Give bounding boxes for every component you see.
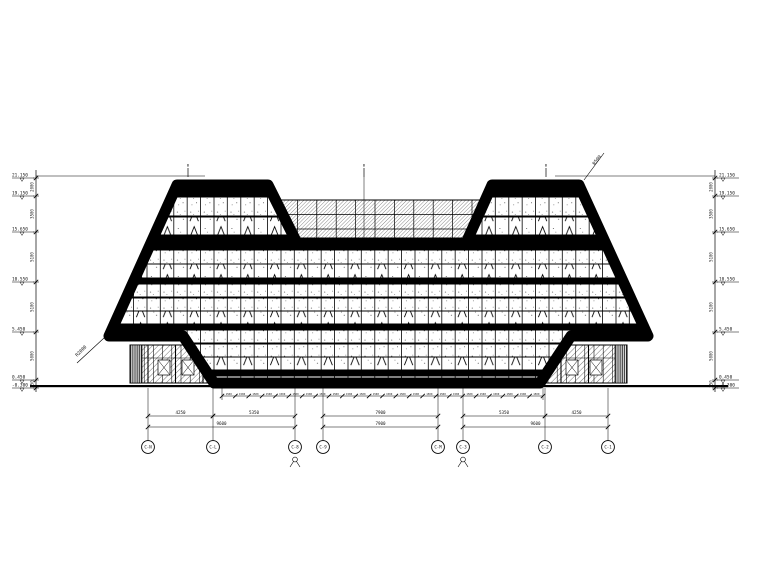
svg-text:1500: 1500	[373, 392, 380, 396]
level-symbol	[721, 388, 725, 391]
svg-text:1500: 1500	[279, 392, 286, 396]
detail-marker	[458, 457, 468, 467]
ground	[30, 385, 728, 387]
glazing-row-braced	[95, 311, 665, 324]
svg-text:B: B	[363, 164, 365, 168]
svg-text:5000: 5000	[709, 351, 714, 361]
svg-text:1500: 1500	[520, 392, 527, 396]
svg-text:1500: 1500	[333, 392, 340, 396]
svg-text:1500: 1500	[440, 392, 447, 396]
svg-text:5350: 5350	[249, 410, 260, 415]
svg-text:19.150: 19.150	[12, 190, 28, 196]
svg-text:1500: 1500	[533, 392, 540, 396]
level-symbol	[20, 282, 24, 285]
svg-text:1500: 1500	[226, 392, 233, 396]
svg-text:1500: 1500	[426, 392, 433, 396]
level-symbol	[20, 196, 24, 199]
svg-text:5100: 5100	[709, 252, 714, 262]
svg-text:3500: 3500	[30, 209, 35, 219]
svg-text:C-9: C-9	[319, 445, 327, 450]
svg-text:5000: 5000	[30, 351, 35, 361]
glazing-row	[95, 284, 665, 297]
level-symbol	[20, 332, 24, 335]
svg-text:1500: 1500	[493, 392, 500, 396]
svg-text:21.150: 21.150	[12, 172, 28, 178]
svg-text:B: B	[187, 164, 189, 168]
svg-text:5.450: 5.450	[12, 326, 26, 332]
svg-text:C-N: C-N	[144, 445, 152, 450]
svg-text:-0.300: -0.300	[12, 382, 28, 388]
svg-text:C-3: C-3	[459, 445, 467, 450]
glazing-row-braced	[95, 264, 665, 278]
svg-text:2000: 2000	[709, 182, 714, 192]
svg-text:1500: 1500	[466, 392, 473, 396]
svg-text:C-2: C-2	[541, 445, 549, 450]
svg-text:9600: 9600	[530, 421, 541, 426]
svg-text:3500: 3500	[709, 209, 714, 219]
svg-text:1500: 1500	[239, 392, 246, 396]
svg-text:750: 750	[709, 380, 714, 388]
svg-text:15.650: 15.650	[12, 226, 28, 232]
svg-text:1500: 1500	[453, 392, 460, 396]
svg-text:1500: 1500	[306, 392, 313, 396]
svg-text:1500: 1500	[399, 392, 406, 396]
svg-text:0.450: 0.450	[12, 374, 26, 380]
svg-text:5350: 5350	[499, 410, 510, 415]
level-symbol	[721, 232, 725, 235]
svg-text:5100: 5100	[30, 252, 35, 262]
svg-text:1500: 1500	[413, 392, 420, 396]
svg-text:-0.300: -0.300	[719, 382, 735, 388]
level-symbol	[20, 232, 24, 235]
svg-text:C-M: C-M	[434, 445, 442, 450]
svg-text:15.650: 15.650	[719, 226, 735, 232]
svg-text:7900: 7900	[375, 421, 386, 426]
svg-text:C-L: C-L	[209, 445, 217, 450]
svg-text:7900: 7900	[375, 410, 386, 415]
roof-screen-wall	[272, 177, 486, 243]
bottom-dimensions: 1500150015001500150015001500150015001500…	[142, 388, 615, 467]
spandrel-band	[95, 324, 665, 330]
level-symbol	[721, 196, 725, 199]
spandrel-band	[95, 278, 665, 284]
svg-text:5100: 5100	[709, 302, 714, 312]
svg-text:10.550: 10.550	[719, 276, 735, 282]
svg-text:1500: 1500	[252, 392, 259, 396]
svg-text:4250: 4250	[571, 410, 582, 415]
detail-marker	[290, 457, 300, 467]
level-symbol	[721, 332, 725, 335]
svg-text:1500: 1500	[506, 392, 513, 396]
drawing-sheet: BBB 2000350051005100500075021.15019.1501…	[0, 0, 760, 570]
level-symbol	[721, 282, 725, 285]
level-symbol	[721, 178, 725, 181]
ground-line	[30, 385, 728, 387]
svg-text:B: B	[545, 164, 547, 168]
svg-text:4250: 4250	[175, 410, 186, 415]
svg-text:C-1: C-1	[604, 445, 612, 450]
svg-text:9600: 9600	[216, 421, 227, 426]
svg-text:1500: 1500	[319, 392, 326, 396]
glazing-row	[95, 250, 665, 264]
level-symbol	[20, 388, 24, 391]
svg-text:0.450: 0.450	[719, 374, 733, 380]
svg-text:1500: 1500	[346, 392, 353, 396]
svg-text:1500: 1500	[359, 392, 366, 396]
svg-text:5.450: 5.450	[719, 326, 733, 332]
svg-text:21.150: 21.150	[719, 172, 735, 178]
svg-text:1500: 1500	[292, 392, 299, 396]
radius-callout-left: R2000	[74, 344, 88, 358]
svg-text:19.150: 19.150	[719, 190, 735, 196]
radius-callout-right: R500	[591, 154, 603, 167]
svg-text:1500: 1500	[266, 392, 273, 396]
svg-text:10.550: 10.550	[12, 276, 28, 282]
svg-text:1500: 1500	[386, 392, 393, 396]
elevation-drawing: BBB 2000350051005100500075021.15019.1501…	[0, 0, 760, 570]
svg-text:5100: 5100	[30, 302, 35, 312]
svg-text:2000: 2000	[30, 182, 35, 192]
level-symbol	[20, 178, 24, 181]
svg-text:750: 750	[30, 380, 35, 388]
svg-text:C-8: C-8	[291, 445, 299, 450]
glazing-row	[95, 298, 665, 311]
svg-text:1500: 1500	[480, 392, 487, 396]
